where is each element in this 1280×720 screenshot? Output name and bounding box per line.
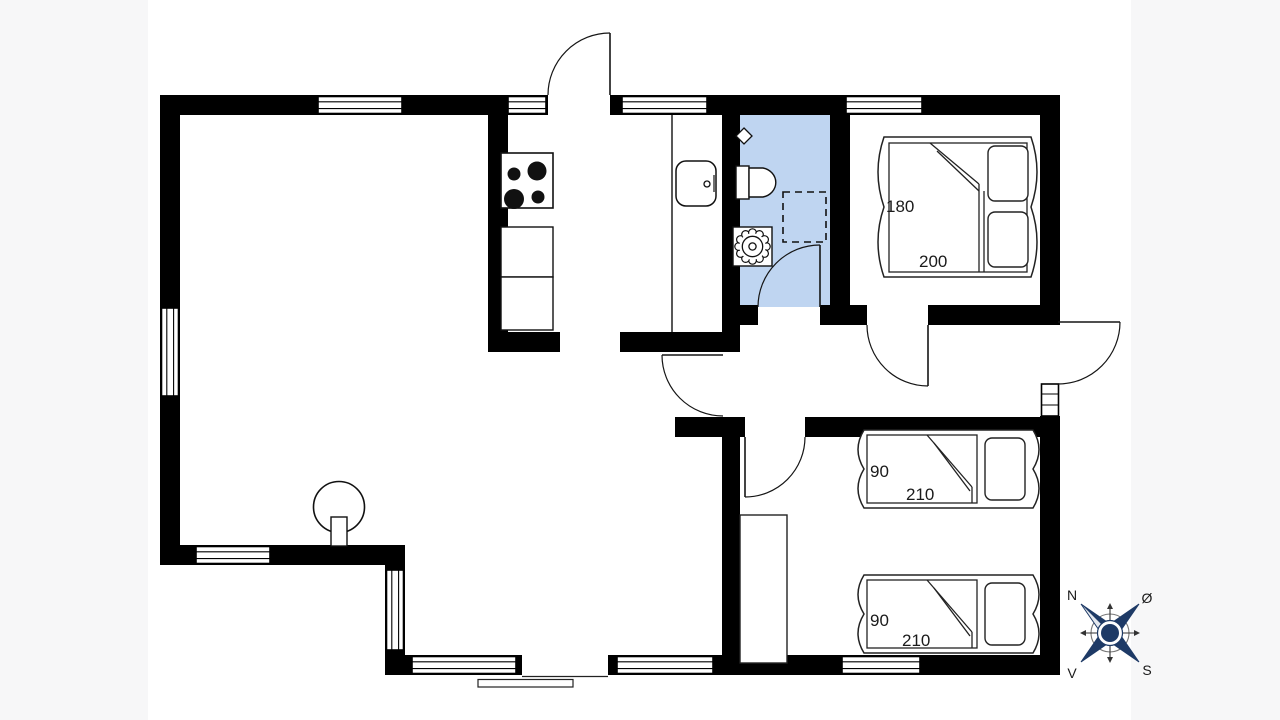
dimension-label: 180: [886, 197, 914, 216]
kitchen-counter-cell: [501, 277, 553, 330]
dimension-label: 90: [870, 611, 889, 630]
wardrobe: [740, 515, 787, 663]
washing-machine-icon: [733, 227, 772, 266]
kitchen-counter-cell: [501, 227, 553, 277]
wall-bedroom-south: [850, 305, 867, 325]
wall-bathroom-south: [722, 305, 758, 325]
window: [387, 570, 404, 650]
floor-plan-page: N Ø V S 180 200 90 210 90 210: [0, 0, 1280, 720]
hall-door: [662, 355, 723, 416]
bathroom-floor: [740, 113, 830, 307]
pillow-icon: [988, 212, 1028, 267]
wall-bedroom-south: [928, 305, 1060, 325]
window: [508, 97, 546, 114]
wall: [1040, 416, 1060, 675]
window: [162, 308, 179, 396]
terrace-step: [478, 680, 573, 688]
compass-label-south: S: [1142, 662, 1151, 678]
pillow-icon: [988, 146, 1028, 201]
wall-bathroom-south: [820, 305, 850, 325]
window: [617, 657, 713, 674]
window: [196, 547, 270, 564]
kidsroom-door: [745, 437, 805, 497]
wall-kidsroom-west: [722, 417, 740, 663]
window: [1042, 384, 1059, 416]
window: [412, 657, 516, 674]
window: [842, 657, 920, 674]
wall-kitchen-south: [488, 332, 560, 352]
window: [846, 97, 922, 114]
compass-label-west: V: [1067, 665, 1077, 681]
terrace-door: [478, 677, 608, 688]
compass-rose-icon: N Ø V S: [1067, 587, 1153, 681]
window: [318, 97, 402, 114]
dimension-label: 210: [906, 485, 934, 504]
floor-plan-drawing: N Ø V S 180 200 90 210 90 210: [0, 0, 1280, 720]
entrance-door: [548, 33, 610, 95]
bedroom-door: [867, 325, 928, 386]
wood-stove-icon: [314, 482, 365, 547]
window: [622, 97, 707, 114]
east-exterior-door: [1058, 322, 1120, 384]
wall: [1040, 95, 1060, 322]
dimension-label: 200: [919, 252, 947, 271]
wall-bathroom-east: [830, 115, 850, 325]
toilet-icon: [736, 166, 776, 199]
dimension-label: 90: [870, 462, 889, 481]
compass-label-east: Ø: [1142, 590, 1153, 606]
kitchen-sink-icon: [676, 161, 716, 206]
kitchen: [501, 115, 716, 332]
dimension-label: 210: [902, 631, 930, 650]
compass-label-north: N: [1067, 587, 1077, 603]
